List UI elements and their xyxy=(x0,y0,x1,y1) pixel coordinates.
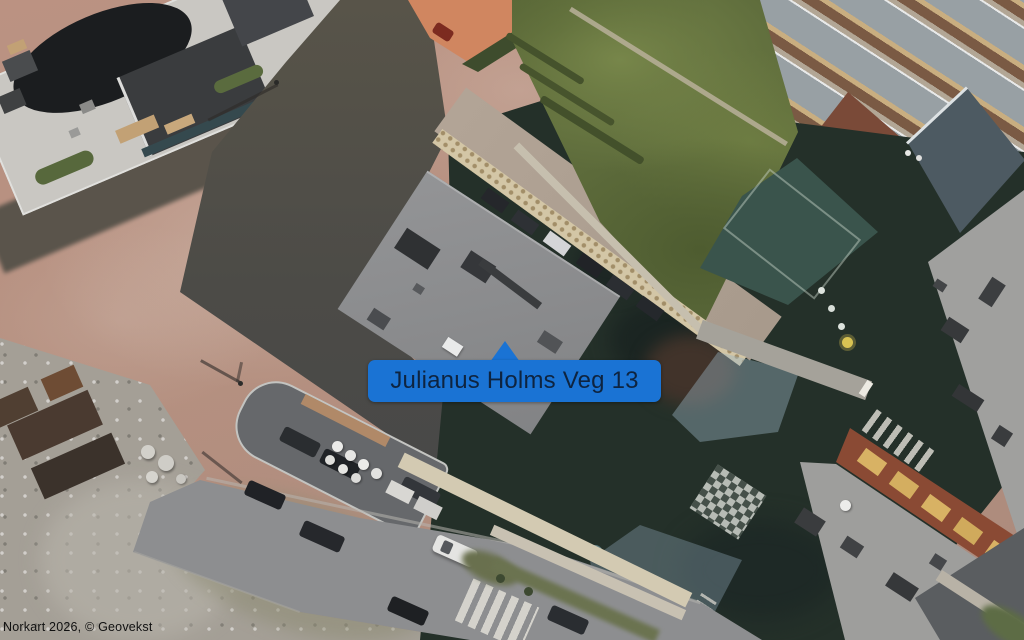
marker-pointer-icon xyxy=(490,341,520,362)
address-marker[interactable]: Julianus Holms Veg 13 xyxy=(368,340,661,403)
tree xyxy=(524,587,533,596)
flower-decoration xyxy=(818,287,825,294)
roof-ridge-shadow xyxy=(478,258,542,309)
boulder xyxy=(158,455,174,471)
rooftop-unit xyxy=(905,150,911,156)
roof-clutter xyxy=(68,127,80,138)
round-shelter xyxy=(332,441,343,452)
tree xyxy=(496,574,505,583)
car-windshield xyxy=(440,540,454,555)
roof-vent xyxy=(412,283,425,295)
round-shelter xyxy=(351,473,361,483)
flower-decoration xyxy=(828,305,835,312)
round-shelter xyxy=(358,459,369,470)
roof-vent xyxy=(394,228,441,270)
aerial-imagery xyxy=(0,0,1024,640)
lamp-post xyxy=(274,80,279,85)
marker-label: Julianus Holms Veg 13 xyxy=(390,367,638,395)
hedge-planter xyxy=(33,148,96,187)
round-shelter xyxy=(325,455,335,465)
boulder xyxy=(146,471,158,483)
attribution-text: Norkart 2026, © Geovekst xyxy=(3,620,153,634)
round-shelter xyxy=(371,468,382,479)
map-canvas[interactable]: Julianus Holms Veg 13 Norkart 2026, © Ge… xyxy=(0,0,1024,640)
rooftop-unit xyxy=(916,155,922,161)
marker-bubble: Julianus Holms Veg 13 xyxy=(368,360,661,402)
flower-decoration-yellow xyxy=(842,337,853,348)
round-shelter xyxy=(345,450,356,461)
roof-dome xyxy=(840,500,851,511)
lamp-post xyxy=(238,381,243,386)
round-shelter xyxy=(338,464,348,474)
roof-vent xyxy=(367,308,391,331)
boulder xyxy=(176,474,186,484)
flower-decoration xyxy=(838,323,845,330)
boulder xyxy=(141,445,155,459)
